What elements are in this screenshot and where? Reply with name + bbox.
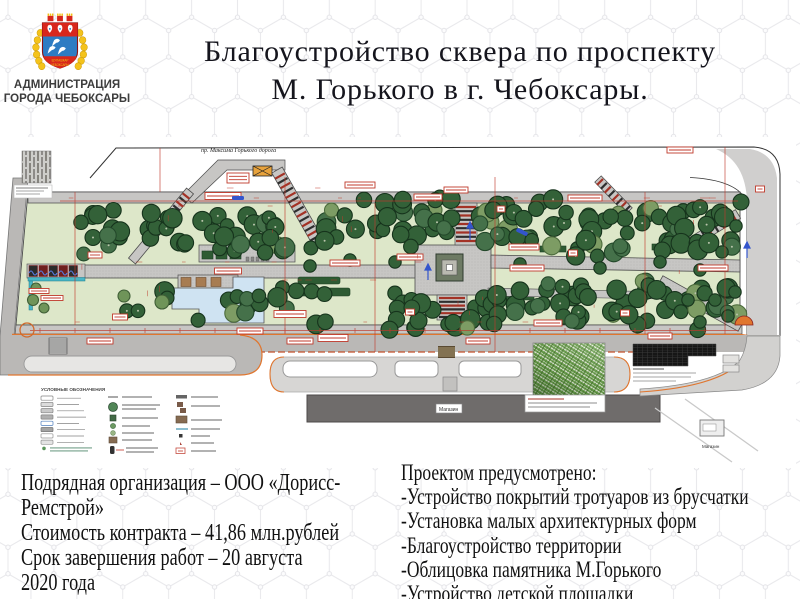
svg-text:ЧЕБОКСАРЫ: ЧЕБОКСАРЫ <box>51 63 69 67</box>
svg-text:УСЛОВНЫЕ ОБОЗНАЧЕНИЯ: УСЛОВНЫЕ ОБОЗНАЧЕНИЯ <box>41 387 105 392</box>
svg-text:Магазин: Магазин <box>702 444 720 449</box>
svg-text:Магазин: Магазин <box>439 407 459 413</box>
svg-text:пр. Максима Горького дорога: пр. Максима Горького дорога <box>201 147 276 154</box>
